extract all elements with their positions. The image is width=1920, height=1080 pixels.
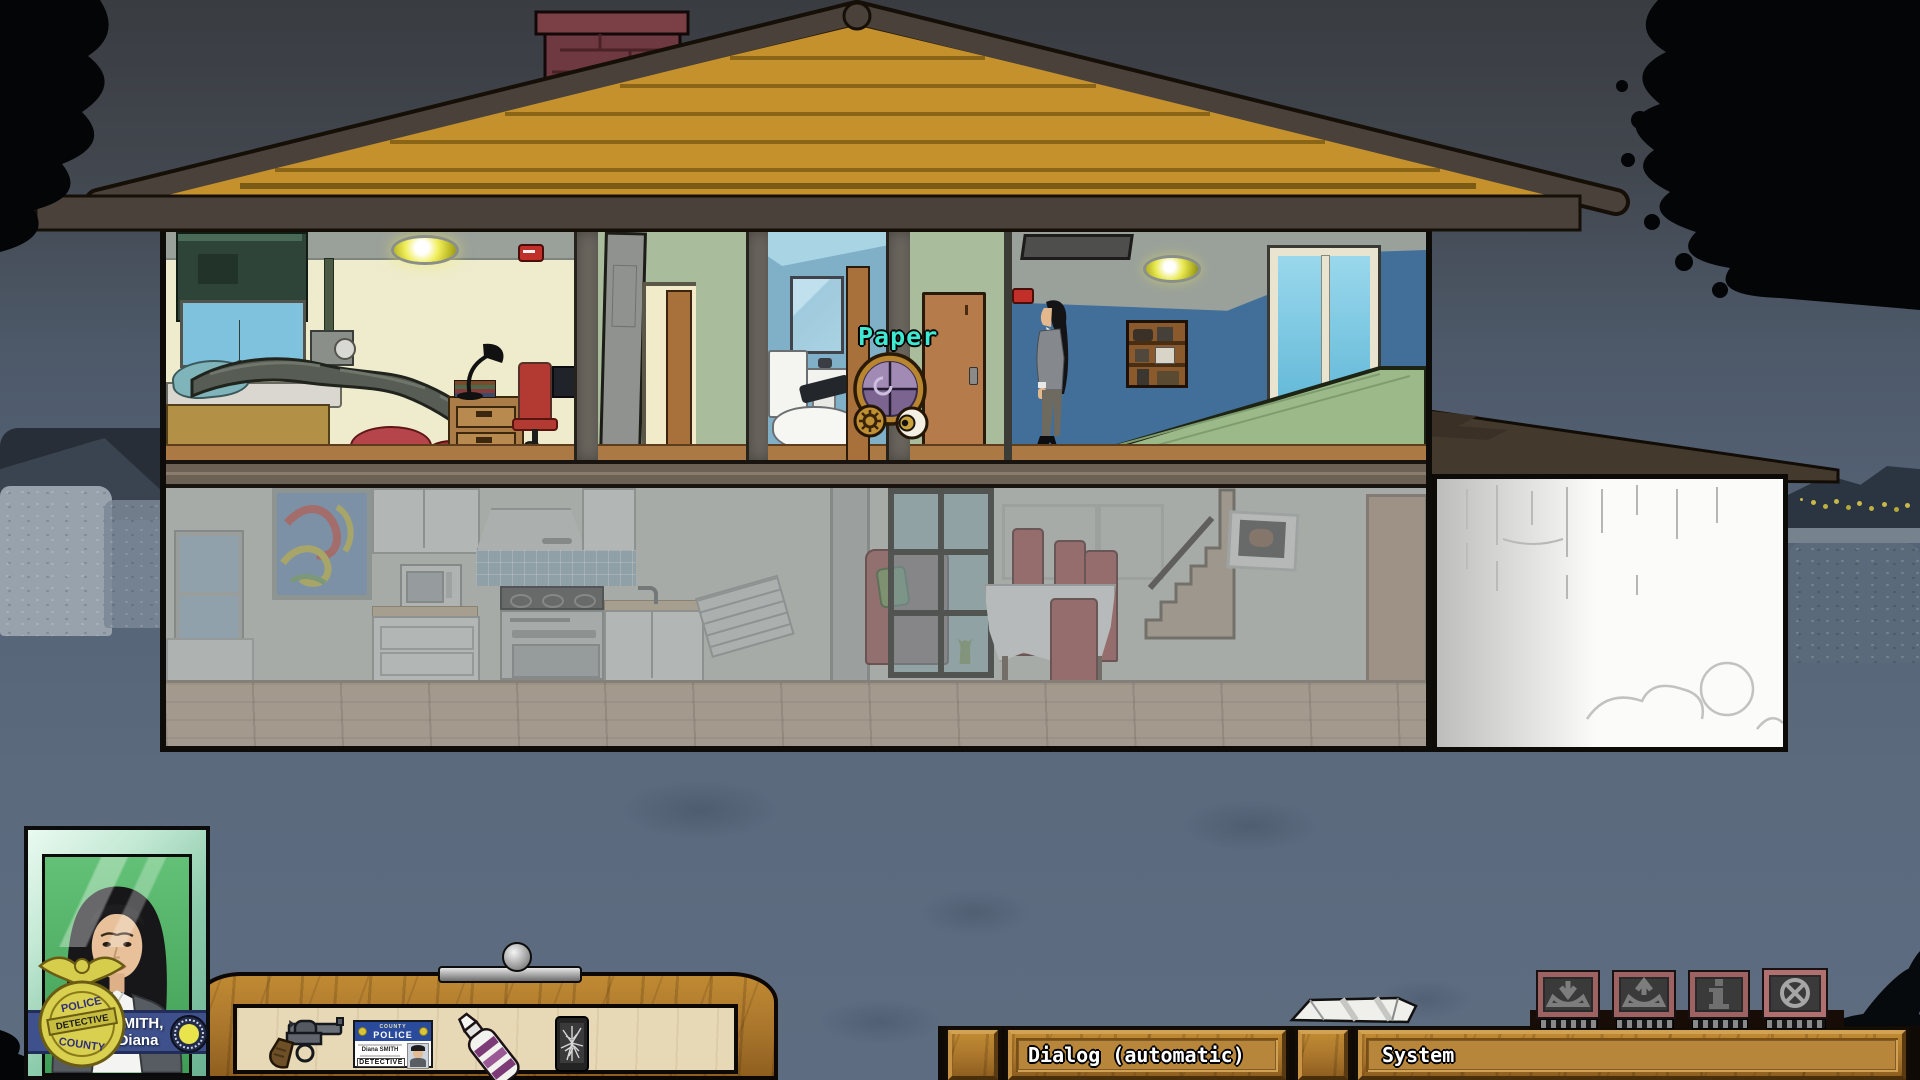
inventory-panel: COUNTY POLICE Diana SMITH DETECTIVE xyxy=(233,1004,738,1074)
distant-city-lights xyxy=(1800,498,1803,501)
load-upload-icon xyxy=(1619,977,1669,1012)
bedroom xyxy=(166,232,574,460)
open-door-gray[interactable] xyxy=(599,232,647,459)
hallway-upper xyxy=(598,232,746,460)
interact-gear-icon[interactable] xyxy=(855,406,885,436)
wall-edge xyxy=(1004,232,1012,460)
inventory-item-police-id[interactable]: COUNTY POLICE Diana SMITH DETECTIVE xyxy=(353,1020,433,1068)
door-handle-icon xyxy=(969,367,978,385)
desk-lamp-icon xyxy=(455,342,509,400)
info-icon xyxy=(1695,977,1743,1012)
hall-floor xyxy=(598,444,746,460)
system-stub-button[interactable] xyxy=(1298,1030,1348,1080)
blue-room xyxy=(1012,232,1426,460)
inventory-tray: COUNTY POLICE Diana SMITH DETECTIVE xyxy=(195,972,778,1080)
ceiling-light xyxy=(1146,258,1198,280)
button-base xyxy=(1766,1019,1826,1029)
hedge-right xyxy=(1790,543,1920,663)
save-download-icon xyxy=(1543,977,1593,1012)
hotspot-label: Paper xyxy=(858,322,938,351)
system-bar-label: System xyxy=(1366,1038,1898,1072)
npc-woman[interactable] xyxy=(1030,296,1076,460)
game-stage: Dialog (automatic) System xyxy=(0,0,1920,1080)
dialog-bar-label: Dialog (automatic) xyxy=(1016,1038,1278,1072)
magnifier-cursor[interactable] xyxy=(843,352,941,440)
rank-icon xyxy=(179,1024,199,1044)
bathroom-mirror[interactable] xyxy=(790,276,844,354)
upper-floor xyxy=(166,232,1426,460)
detective-badge-icon: POLICE DETECTIVE COUNTY xyxy=(32,950,132,1076)
hedge-left-bright xyxy=(0,486,112,636)
dialog-stub-button[interactable] xyxy=(948,1030,998,1080)
desk-chair xyxy=(518,362,552,422)
quit-button[interactable] xyxy=(1764,970,1826,1017)
id-card-photo xyxy=(407,1043,429,1069)
ceiling-light xyxy=(394,238,456,262)
system-bar[interactable]: System xyxy=(1358,1030,1906,1080)
inventory-item-revolver[interactable] xyxy=(259,1014,351,1070)
load-button[interactable] xyxy=(1614,972,1674,1017)
glass-shine xyxy=(42,854,192,947)
inventory-item-glue-bottle[interactable] xyxy=(445,1004,531,1080)
smoke-alarm-icon xyxy=(518,244,544,262)
floor-divider xyxy=(166,460,1426,488)
button-base xyxy=(1692,1019,1748,1029)
tree-silhouette-top-left xyxy=(0,0,130,260)
wall-pipe xyxy=(324,258,334,334)
dialog-bar[interactable]: Dialog (automatic) xyxy=(1008,1030,1286,1080)
house-cross-section xyxy=(160,226,1432,752)
water-band xyxy=(1788,528,1920,543)
save-button[interactable] xyxy=(1538,972,1598,1017)
laptop xyxy=(552,366,574,398)
door-edge xyxy=(666,290,692,460)
tree-silhouette-top-right xyxy=(1600,0,1920,320)
info-button[interactable] xyxy=(1690,972,1748,1017)
inactive-floor-overlay xyxy=(166,488,1426,746)
inventory-item-phone[interactable] xyxy=(555,1016,589,1072)
button-base xyxy=(1540,1019,1598,1029)
tray-handle-knob[interactable] xyxy=(502,942,532,972)
quit-close-icon xyxy=(1769,975,1821,1012)
lower-floor xyxy=(166,488,1426,746)
look-eye-icon[interactable] xyxy=(897,408,927,438)
rank-button[interactable] xyxy=(170,1015,208,1053)
garage-unexplored-area xyxy=(1432,474,1788,752)
blue-room-floor xyxy=(1012,444,1426,460)
bedroom-floor xyxy=(166,444,574,460)
lit-doorway[interactable] xyxy=(642,282,696,460)
character-portrait-card[interactable]: SMITH, Diana POLICE DETECTIVE COUNTY xyxy=(24,826,210,1080)
id-card-holder: Diana SMITH xyxy=(355,1047,405,1053)
id-card-role: DETECTIVE xyxy=(357,1058,405,1067)
newspaper-item[interactable] xyxy=(1280,994,1430,1026)
button-base xyxy=(1616,1019,1674,1029)
